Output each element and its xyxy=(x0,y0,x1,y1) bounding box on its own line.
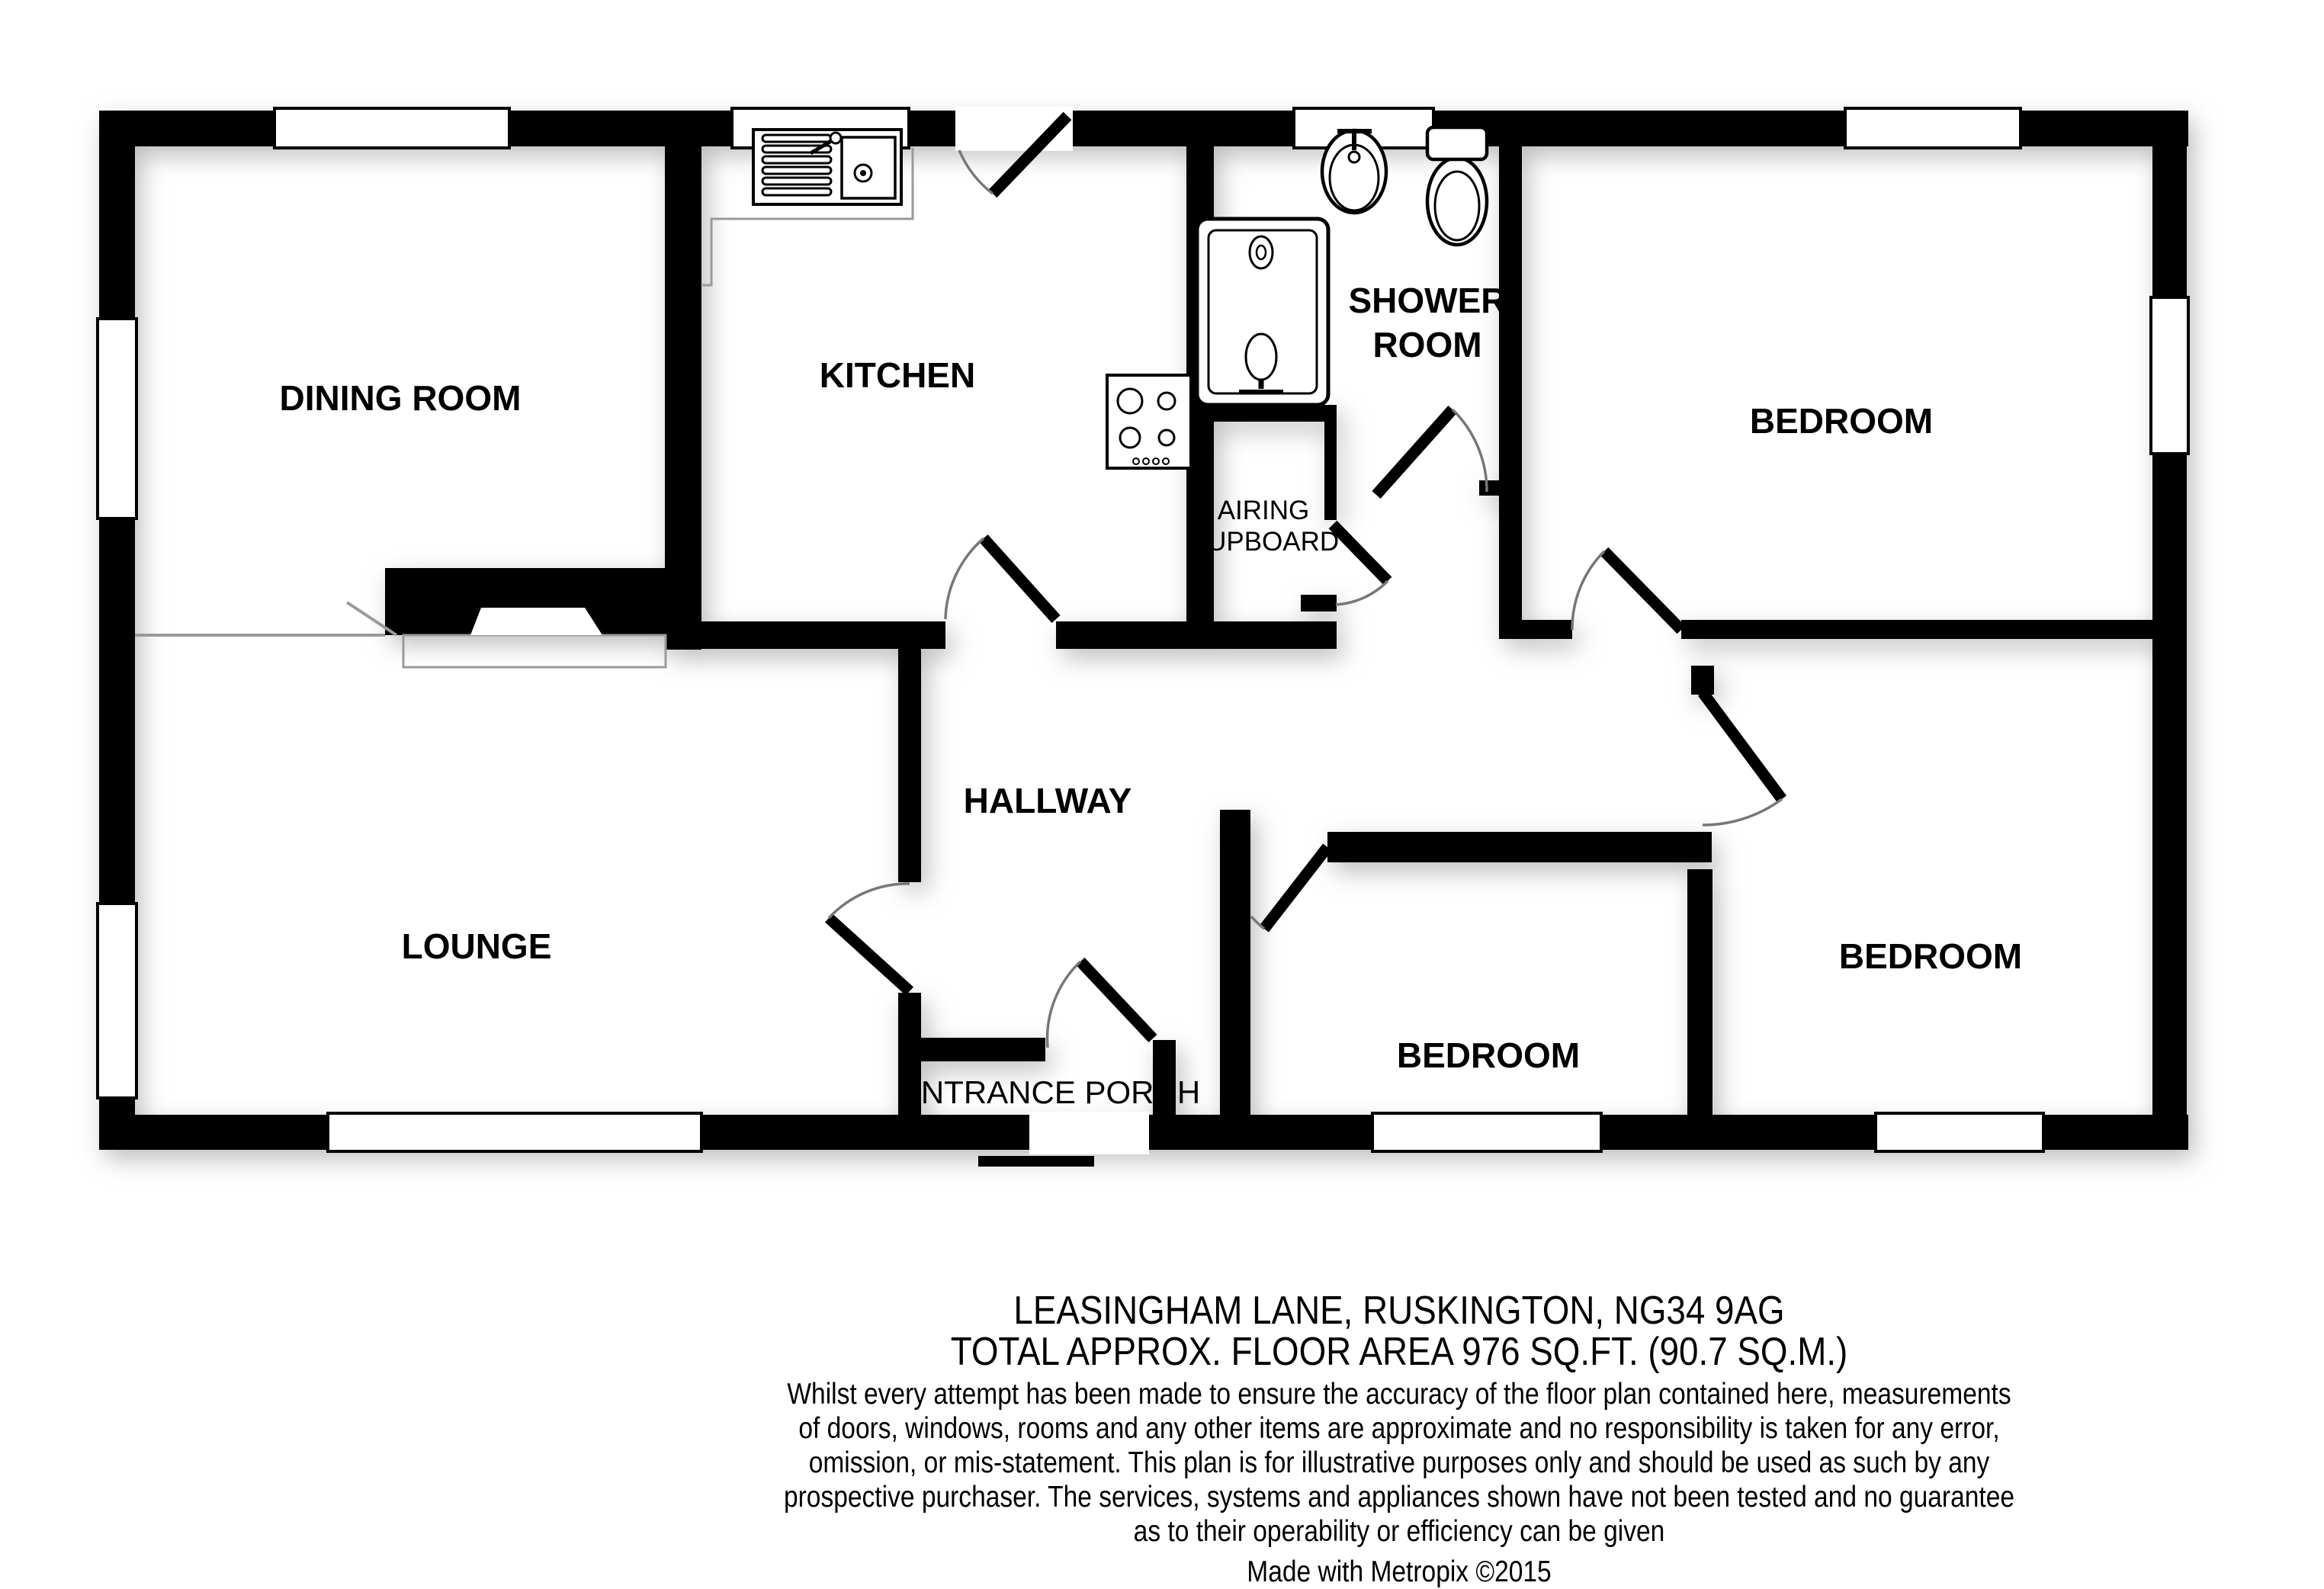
wall-shower-bottom xyxy=(1214,405,1337,422)
door-swing-icon-bedroom-top-right xyxy=(1572,551,1681,630)
address-line: LEASINGHAM LANE, RUSKINGTON, NG34 9AG xyxy=(594,1290,2204,1331)
window-icon-bedroommid-bottom xyxy=(1372,1113,1601,1151)
hob-unit xyxy=(1107,375,1191,468)
room-label-dining: DINING ROOM xyxy=(280,378,522,418)
room-label-bedroom-middle: BEDROOM xyxy=(1397,1035,1580,1075)
wall-porch-top xyxy=(921,1038,1045,1061)
room-label-shower-line1: SHOWER xyxy=(1349,281,1507,320)
room-label-entrance-porch: ENTRANCE PORCH xyxy=(900,1074,1200,1110)
kitchen-sink-icon xyxy=(753,130,901,204)
disclaimer-line-3: omission, or mis-statement. This plan is… xyxy=(612,1446,2186,1480)
wall-exterior-right xyxy=(2152,111,2187,1150)
toilet-icon xyxy=(1427,127,1487,245)
window-icon-lounge-bottom xyxy=(328,1113,701,1151)
fireplace-opening xyxy=(470,608,602,635)
room-label-bedroom-right: BEDROOM xyxy=(1839,936,2022,976)
wash-basin-icon xyxy=(1322,130,1386,213)
door-swing-icon-lounge xyxy=(829,884,910,991)
room-label-lounge: LOUNGE xyxy=(402,926,552,966)
hob-burner-2 xyxy=(1158,393,1175,409)
front-door-opening xyxy=(1029,1112,1149,1154)
wall-bedroomright-left xyxy=(1687,869,1713,1115)
wall-dining-kitchen xyxy=(665,146,701,650)
sink-tap-head xyxy=(830,133,841,143)
wall-hallway-left-top xyxy=(898,633,921,882)
disclaimer-line-5: as to their operability or efficiency ca… xyxy=(612,1514,2186,1549)
wall-airing-right xyxy=(1324,422,1337,520)
footer-text-block: LEASINGHAM LANE, RUSKINGTON, NG34 9AG TO… xyxy=(484,1290,2314,1589)
wall-bedroommid-left xyxy=(1220,810,1250,1115)
room-label-airing-line2: CUPBOARD xyxy=(1188,527,1339,557)
disclaimer-line-2: of doors, windows, rooms and any other i… xyxy=(612,1411,2186,1446)
hob-burner-3 xyxy=(1120,428,1140,448)
shower-head-center xyxy=(1257,246,1266,259)
hob-icon xyxy=(1107,375,1191,468)
wall-bedroomtr-bottom-left xyxy=(1522,620,1572,639)
window-icon-lounge-left xyxy=(98,904,136,1098)
disclaimer-line-4: prospective purchaser. The services, sys… xyxy=(612,1480,2186,1514)
wall-bedroomtr-bottom-right xyxy=(1681,620,2154,639)
credit-line: Made with Metropix ©2015 xyxy=(612,1555,2186,1589)
shower-cubicle-icon xyxy=(1197,219,1328,405)
wall-bedroommid-top xyxy=(1327,832,1712,862)
door-swing-icon-entrance-porch xyxy=(1048,961,1153,1048)
room-label-airing-line1: AIRING xyxy=(1218,496,1310,525)
toilet-bowl-inner xyxy=(1435,172,1479,240)
wall-shower-door-stub xyxy=(1479,480,1499,496)
room-label-bedroom-top-right: BEDROOM xyxy=(1750,401,1933,441)
fireplace-hearth xyxy=(403,635,666,667)
floor-area-line: TOTAL APPROX. FLOOR AREA 976 SQ.FT. (90.… xyxy=(594,1331,2204,1372)
room-label-shower-line2: ROOM xyxy=(1372,325,1481,364)
room-label-hallway: HALLWAY xyxy=(964,781,1132,820)
door-swing-icon-airing-cupboard xyxy=(1333,525,1388,605)
sink-drain-dot xyxy=(860,170,866,176)
room-label-kitchen: KITCHEN xyxy=(820,355,975,395)
toilet-cistern xyxy=(1427,127,1487,159)
front-door-step xyxy=(978,1156,1094,1167)
basin-tap-head xyxy=(1349,152,1359,162)
door-swing-icon-bedroom-middle xyxy=(1251,847,1327,929)
fireplace-icon xyxy=(470,608,602,635)
walls xyxy=(99,111,2188,1150)
door-swing-icon-shower-room xyxy=(1376,409,1487,495)
disclaimer-line-1: Whilst every attempt has been made to en… xyxy=(612,1377,2186,1411)
hob-burner-4 xyxy=(1159,430,1174,445)
window-icon-bedroomtr-top xyxy=(1845,108,2021,148)
window-icon-dining-left xyxy=(98,319,136,518)
window-icon-bedroomright-bottom xyxy=(1876,1113,2043,1151)
hob-burner-1 xyxy=(1118,389,1142,413)
shower-handle xyxy=(1246,334,1276,380)
wall-bedroomright-hinge-stub xyxy=(1691,666,1714,695)
floorplan-page: DINING ROOM KITCHEN SHOWER ROOM AIRING C… xyxy=(0,0,2324,1589)
door-swing-icon-bedroom-right xyxy=(1703,692,1782,825)
window-icon-bedroomtr-right xyxy=(2151,297,2188,454)
door-swing-icon-kitchen xyxy=(945,538,1056,619)
wall-shower-right xyxy=(1499,146,1522,639)
wall-airing-stub xyxy=(1301,595,1337,612)
window-icon-dining-top xyxy=(274,108,509,148)
